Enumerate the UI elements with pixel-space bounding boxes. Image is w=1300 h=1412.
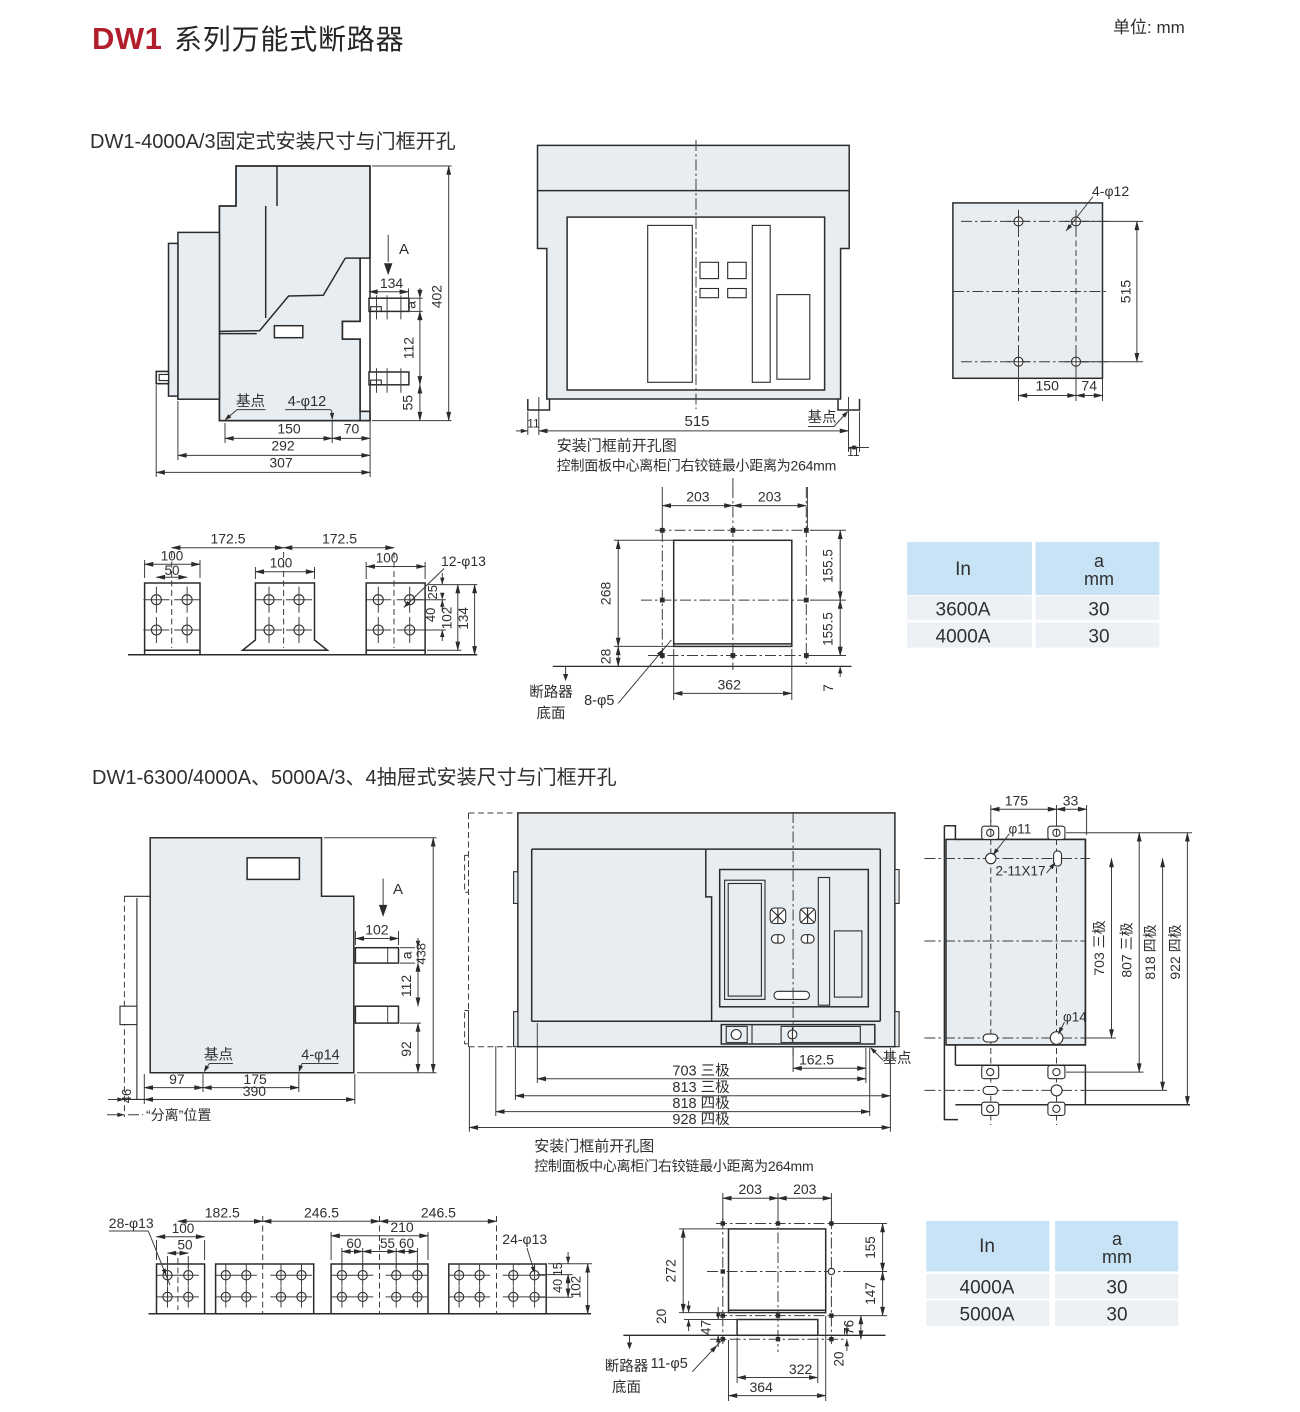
- svg-text:底面: 底面: [537, 705, 566, 722]
- svg-text:515: 515: [684, 413, 709, 430]
- svg-text:15: 15: [551, 1262, 565, 1276]
- svg-text:28-φ13: 28-φ13: [109, 1215, 154, 1231]
- svg-text:100: 100: [172, 1221, 195, 1236]
- svg-text:134: 134: [456, 607, 471, 630]
- svg-text:112: 112: [401, 337, 417, 360]
- svg-text:364: 364: [750, 1379, 774, 1395]
- svg-text:4-φ14: 4-φ14: [301, 1048, 339, 1064]
- svg-text:390: 390: [243, 1083, 267, 1099]
- svg-text:11-φ5: 11-φ5: [651, 1356, 688, 1372]
- svg-text:单位: mm: 单位: mm: [1113, 18, 1185, 37]
- svg-text:a: a: [1094, 551, 1105, 571]
- svg-text:55: 55: [400, 395, 416, 411]
- svg-text:mm: mm: [1084, 569, 1114, 589]
- svg-text:175: 175: [1005, 793, 1029, 809]
- svg-text:438: 438: [414, 943, 429, 965]
- svg-text:46: 46: [119, 1089, 134, 1103]
- svg-text:47: 47: [699, 1320, 714, 1335]
- svg-text:246.5: 246.5: [304, 1205, 339, 1221]
- svg-text:74: 74: [1081, 378, 1097, 394]
- svg-text:182.5: 182.5: [205, 1205, 240, 1221]
- svg-text:292: 292: [271, 438, 295, 454]
- svg-text:162.5: 162.5: [799, 1052, 834, 1068]
- svg-text:703 三极: 703 三极: [672, 1062, 730, 1079]
- svg-text:155.5: 155.5: [821, 549, 836, 583]
- svg-text:102: 102: [365, 922, 389, 938]
- svg-text:322: 322: [789, 1361, 813, 1377]
- svg-text:92: 92: [398, 1041, 414, 1057]
- svg-text:703 三极: 703 三极: [1091, 920, 1107, 975]
- svg-text:28: 28: [598, 648, 614, 664]
- svg-text:基点: 基点: [883, 1050, 912, 1067]
- svg-text:172.5: 172.5: [210, 531, 245, 547]
- svg-text:12-φ13: 12-φ13: [441, 553, 486, 569]
- svg-text:203: 203: [686, 489, 710, 505]
- svg-text:断路器: 断路器: [529, 684, 573, 701]
- svg-text:DW1-4000A/3固定式安装尺寸与门框开孔: DW1-4000A/3固定式安装尺寸与门框开孔: [90, 130, 456, 153]
- svg-text:DW1-6300/4000A、5000A/3、4抽屉式安装尺: DW1-6300/4000A、5000A/3、4抽屉式安装尺寸与门框开孔: [92, 766, 617, 789]
- svg-text:8-φ5: 8-φ5: [584, 693, 614, 709]
- svg-text:55: 55: [380, 1236, 395, 1251]
- svg-text:基点: 基点: [204, 1047, 233, 1064]
- svg-text:155.5: 155.5: [821, 612, 836, 646]
- svg-text:60: 60: [399, 1236, 414, 1251]
- svg-text:134: 134: [380, 275, 404, 291]
- svg-text:In: In: [979, 1236, 995, 1257]
- svg-text:基点: 基点: [236, 393, 265, 410]
- svg-text:断路器: 断路器: [605, 1358, 649, 1375]
- svg-text:40: 40: [423, 608, 438, 622]
- svg-text:112: 112: [398, 975, 414, 998]
- svg-text:φ11: φ11: [1009, 822, 1032, 837]
- svg-text:150: 150: [1036, 378, 1060, 394]
- svg-text:100: 100: [270, 556, 293, 571]
- svg-text:928 四极: 928 四极: [672, 1111, 730, 1128]
- svg-text:150: 150: [277, 421, 301, 437]
- svg-text:818 四极: 818 四极: [672, 1095, 730, 1112]
- svg-text:33: 33: [1063, 793, 1079, 809]
- svg-text:a: a: [399, 951, 415, 959]
- svg-text:4-φ12: 4-φ12: [288, 394, 326, 410]
- svg-text:基点: 基点: [808, 409, 837, 426]
- svg-text:底面: 底面: [612, 1379, 641, 1396]
- svg-text:控制面板中心离柜门右铰链最小距离为264mm: 控制面板中心离柜门右铰链最小距离为264mm: [557, 458, 836, 474]
- svg-text:30: 30: [1088, 600, 1109, 621]
- svg-text:922 四极: 922 四极: [1167, 924, 1183, 979]
- svg-text:30: 30: [1088, 627, 1109, 648]
- svg-text:11: 11: [527, 417, 540, 431]
- svg-text:5000A: 5000A: [960, 1305, 1015, 1326]
- svg-text:272: 272: [663, 1259, 679, 1283]
- svg-text:268: 268: [598, 582, 614, 606]
- svg-text:155: 155: [863, 1236, 878, 1259]
- svg-text:mm: mm: [1102, 1247, 1132, 1267]
- svg-text:3600A: 3600A: [936, 600, 991, 621]
- svg-text:φ14: φ14: [1063, 1010, 1087, 1025]
- svg-text:4000A: 4000A: [960, 1278, 1015, 1299]
- svg-text:70: 70: [344, 421, 360, 437]
- svg-text:安装门框前开孔图: 安装门框前开孔图: [534, 1138, 654, 1155]
- svg-text:102: 102: [439, 607, 454, 630]
- svg-text:7: 7: [821, 684, 836, 692]
- svg-text:20: 20: [832, 1351, 847, 1366]
- svg-text:安装门框前开孔图: 安装门框前开孔图: [557, 438, 677, 455]
- svg-text:818 四极: 818 四极: [1142, 924, 1158, 979]
- svg-text:30: 30: [1106, 1278, 1127, 1299]
- svg-text:A: A: [399, 241, 409, 258]
- svg-text:813 三极: 813 三极: [672, 1079, 730, 1096]
- svg-text:4000A: 4000A: [936, 627, 991, 648]
- svg-text:60: 60: [346, 1236, 361, 1251]
- svg-text:203: 203: [793, 1181, 817, 1197]
- svg-text:97: 97: [169, 1071, 185, 1087]
- svg-text:4-φ12: 4-φ12: [1092, 183, 1129, 199]
- svg-text:20: 20: [654, 1309, 669, 1324]
- svg-text:In: In: [955, 559, 971, 580]
- svg-text:“分离”位置: “分离”位置: [146, 1107, 211, 1123]
- svg-text:40: 40: [551, 1279, 565, 1293]
- svg-text:203: 203: [739, 1181, 763, 1197]
- svg-text:203: 203: [758, 489, 782, 505]
- svg-text:2-11X17: 2-11X17: [996, 864, 1046, 879]
- svg-text:50: 50: [164, 563, 179, 578]
- svg-text:172.5: 172.5: [322, 531, 357, 547]
- svg-text:515: 515: [1118, 280, 1134, 304]
- svg-text:25: 25: [425, 585, 440, 599]
- svg-text:a: a: [403, 301, 419, 309]
- svg-text:DW1: DW1: [92, 21, 162, 56]
- svg-text:A: A: [393, 881, 403, 898]
- svg-text:362: 362: [718, 676, 742, 692]
- svg-text:24-φ13: 24-φ13: [502, 1231, 547, 1247]
- svg-text:210: 210: [390, 1219, 414, 1235]
- svg-text:a: a: [1112, 1229, 1123, 1249]
- svg-text:147: 147: [863, 1282, 878, 1305]
- svg-text:11: 11: [847, 445, 860, 459]
- svg-text:307: 307: [269, 455, 293, 471]
- svg-text:50: 50: [177, 1238, 192, 1253]
- svg-text:控制面板中心离柜门右铰链最小距离为264mm: 控制面板中心离柜门右铰链最小距离为264mm: [534, 1158, 813, 1174]
- svg-text:100: 100: [376, 551, 399, 566]
- svg-text:76: 76: [841, 1320, 856, 1335]
- svg-text:100: 100: [161, 549, 184, 564]
- svg-text:246.5: 246.5: [421, 1205, 456, 1221]
- svg-text:102: 102: [569, 1276, 584, 1299]
- svg-text:402: 402: [429, 285, 445, 309]
- svg-text:30: 30: [1106, 1305, 1127, 1326]
- svg-text:807 三极: 807 三极: [1119, 922, 1135, 977]
- svg-text:系列万能式断路器: 系列万能式断路器: [174, 24, 404, 55]
